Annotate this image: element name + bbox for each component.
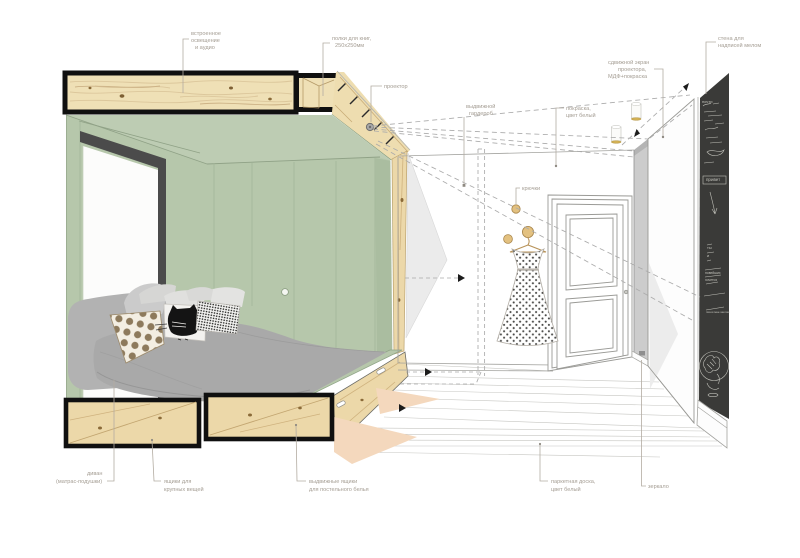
svg-text:крючки: крючки — [522, 186, 540, 192]
svg-text:встроенное: встроенное — [191, 31, 221, 37]
svg-text:диван: диван — [87, 471, 103, 477]
svg-text:МДФ+покраска: МДФ+покраска — [608, 74, 648, 80]
svg-text:ящики для: ящики для — [164, 479, 191, 485]
svg-text:ты: ты — [707, 245, 712, 250]
svg-text:хочется: хочется — [705, 278, 717, 282]
svg-text:цвет белый: цвет белый — [566, 112, 596, 119]
svg-text:новейших: новейших — [705, 271, 721, 275]
svg-text:250х250мм: 250х250мм — [335, 43, 364, 49]
svg-text:полки для книг,: полки для книг, — [332, 36, 372, 42]
svg-text:крупных вещей: крупных вещей — [164, 486, 204, 493]
svg-text:пиши мне мелом: пиши мне мелом — [706, 310, 730, 314]
svg-text:проектор: проектор — [384, 84, 408, 90]
svg-text:освещение: освещение — [191, 38, 220, 44]
svg-text:покраска,: покраска, — [566, 106, 591, 112]
svg-text:гардероб: гардероб — [469, 111, 493, 117]
svg-text:выдвижной: выдвижной — [466, 103, 495, 110]
svg-text:(матрас-подушки): (матрас-подушки) — [56, 479, 102, 485]
svg-text:и аудио: и аудио — [195, 45, 215, 51]
svg-text:выдвижные ящики: выдвижные ящики — [309, 479, 357, 485]
svg-text:для постельного белья: для постельного белья — [309, 487, 369, 493]
svg-text:и: и — [707, 253, 709, 258]
svg-text:почти: почти — [702, 99, 712, 104]
svg-text:сдвижной экран: сдвижной экран — [608, 59, 649, 66]
svg-text:надписей мелом: надписей мелом — [718, 42, 761, 49]
svg-text:стена для: стена для — [718, 36, 744, 42]
svg-text:цвет белый: цвет белый — [551, 486, 581, 493]
svg-text:проектора,: проектора, — [618, 67, 647, 73]
svg-text:паркетная доска,: паркетная доска, — [551, 479, 596, 485]
svg-text:привет: привет — [706, 177, 720, 182]
svg-text:зеркало: зеркало — [648, 484, 669, 490]
